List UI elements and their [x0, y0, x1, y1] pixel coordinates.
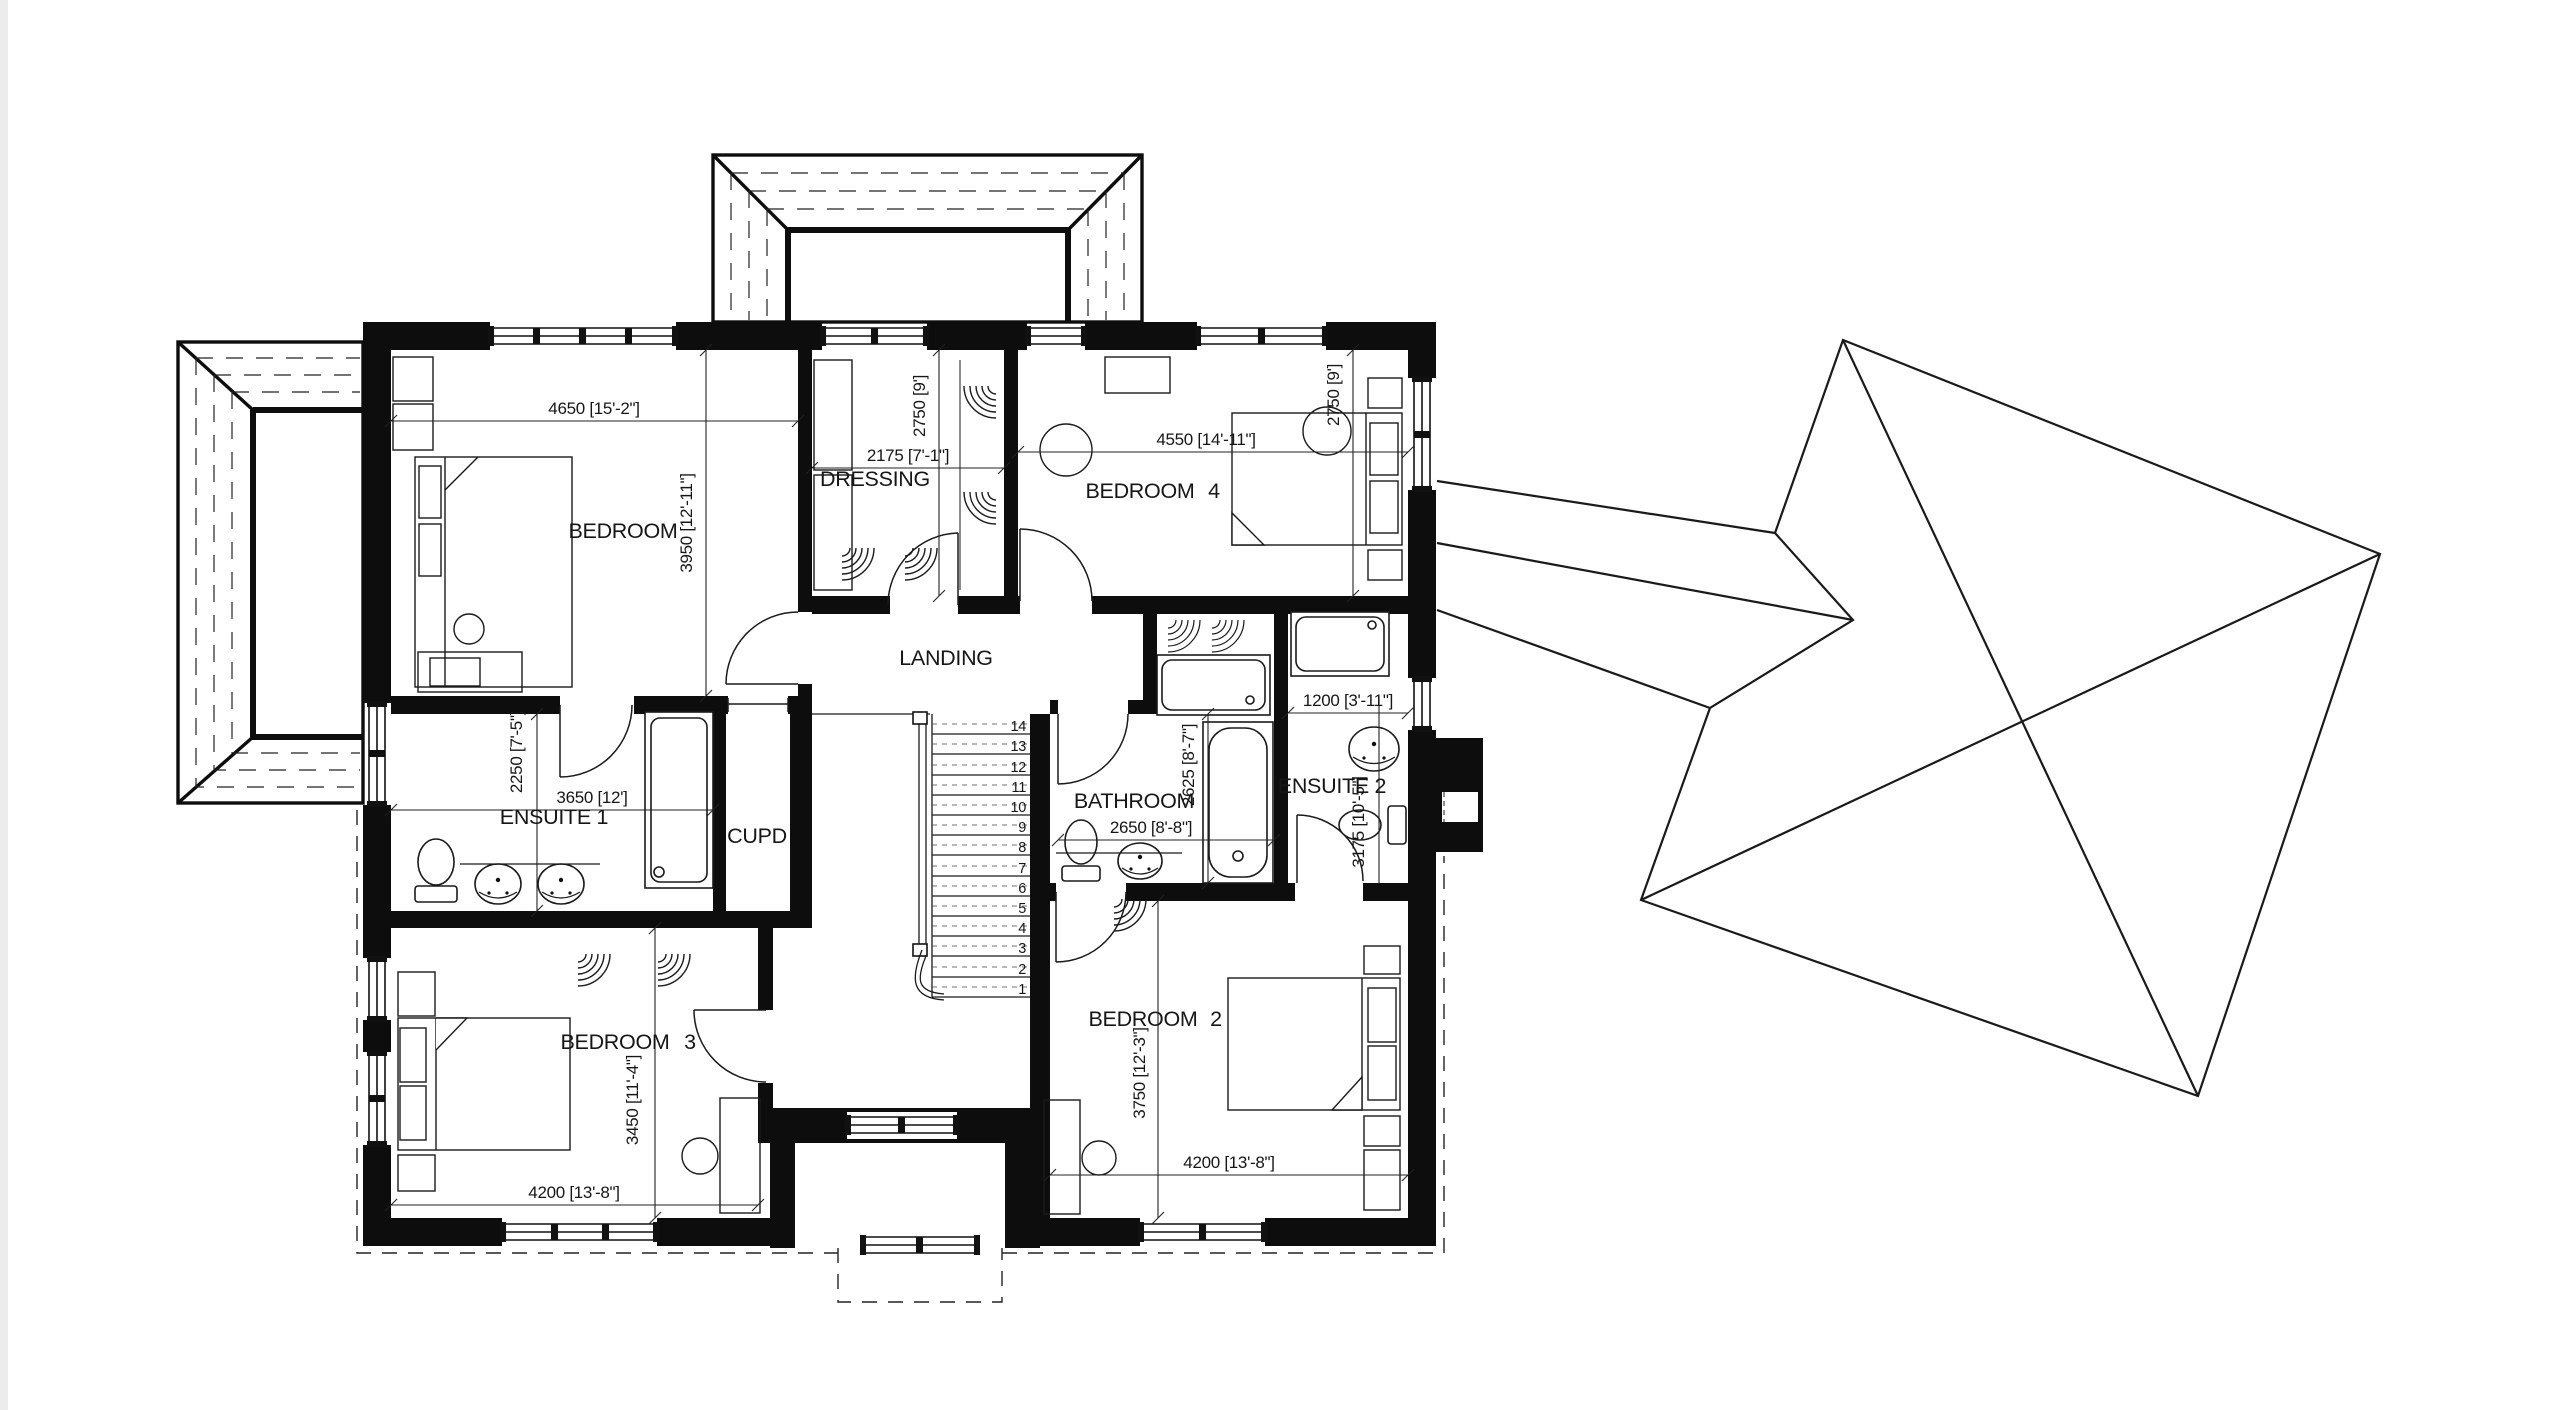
dim-ensuite2-width: 1200 [3'-11"] [1303, 691, 1393, 710]
roof-hip-line [1641, 554, 2380, 900]
room-label-dressing: DRESSING [820, 467, 930, 491]
roof-hip-line [1843, 340, 2198, 1096]
window-dressing-top [820, 322, 929, 350]
floor-plan-drawing: 14 13 12 11 10 9 8 7 6 5 4 3 2 1 [0, 0, 2558, 1410]
window-bedroom4-top-right [1195, 322, 1328, 350]
balcony-roof-left [178, 342, 363, 803]
room-number-bedroom-4: 4 [1208, 479, 1220, 503]
dim-bedroom2-height: 3750 [12'-3"] [1130, 1027, 1149, 1118]
window-ground-bay [838, 1235, 1002, 1302]
dim-bedroom4-height: 2750 [9'] [1324, 364, 1343, 426]
room-label-bedroom-3: BEDROOM [561, 1030, 670, 1054]
dim-ensuite1-height: 2250 [7'-5"] [507, 711, 526, 793]
svg-text:7: 7 [1018, 861, 1026, 877]
svg-text:11: 11 [1012, 780, 1027, 796]
room-label-ensuite-1: ENSUITE 1 [500, 805, 608, 829]
room-label-bedroom-1: BEDROOM [569, 519, 678, 543]
svg-text:13: 13 [1010, 739, 1026, 755]
svg-text:4: 4 [1018, 921, 1026, 937]
dim-ensuite1-width: 3650 [12'] [556, 788, 627, 807]
room-label-bedroom-4: BEDROOM [1086, 479, 1195, 503]
window-bedroom3-left-lower [363, 1050, 391, 1147]
door-cupd [728, 698, 788, 712]
window-bedroom4-right [1408, 376, 1436, 492]
dim-bedroom2-width: 4200 [13'-8"] [1183, 1153, 1274, 1172]
door-bedroom3 [694, 1010, 766, 1082]
svg-text:14: 14 [1010, 719, 1026, 735]
stair-balustrade [913, 712, 944, 1000]
dim-dressing-width: 2175 [7'-1"] [867, 446, 949, 465]
roof-link-lines [1437, 481, 1853, 708]
room-label-bathroom: BATHROOM [1074, 789, 1194, 813]
chimney-flue [1442, 792, 1478, 822]
dim-bedroom4-width: 4550 [14'-11"] [1156, 430, 1255, 449]
svg-text:5: 5 [1018, 901, 1026, 917]
bathroom-fixtures [1056, 620, 1273, 883]
svg-text:2: 2 [1018, 962, 1026, 978]
room-number-bedroom-2: 2 [1210, 1007, 1222, 1031]
dim-bedroom3-height: 3450 [11'-4"] [623, 1055, 642, 1145]
door-bedroom4 [1020, 529, 1092, 601]
svg-text:3: 3 [1018, 941, 1026, 957]
room-number-bedroom-3: 3 [684, 1030, 696, 1054]
dim-dressing-height: 2750 [9'] [910, 375, 929, 437]
staircase: 14 13 12 11 10 9 8 7 6 5 4 3 2 1 [812, 712, 1030, 1000]
dim-bedroom1-height: 3950 [12'-11"] [677, 473, 696, 572]
window-bedroom3-bottom [500, 1218, 659, 1246]
dim-bathroom-width: 2650 [8'-8"] [1110, 818, 1192, 837]
dim-ensuite2-height: 3175 [10'-5"] [1349, 776, 1368, 867]
svg-text:6: 6 [1018, 881, 1026, 897]
svg-text:8: 8 [1018, 840, 1026, 856]
furniture-bedroom1 [393, 357, 572, 692]
room-label-landing: LANDING [899, 646, 992, 670]
main-roof-plan [1437, 340, 2380, 1096]
furniture-bedroom4 [1040, 357, 1402, 580]
room-label-cupd: CUPD [727, 824, 787, 848]
svg-text:12: 12 [1010, 760, 1026, 776]
dim-bedroom1-width: 4650 [15'-2"] [548, 399, 639, 418]
door-bedroom2 [1056, 892, 1126, 962]
svg-text:1: 1 [1018, 982, 1026, 998]
door-dressing [888, 533, 958, 605]
dim-bedroom3-width: 4200 [13'-8"] [528, 1183, 619, 1202]
room-label-ensuite-2: ENSUITE 2 [1278, 774, 1386, 798]
svg-text:9: 9 [1018, 820, 1026, 836]
dim-bathroom-height: 2625 [8'-7"] [1179, 724, 1198, 806]
porch-roof-top [713, 155, 1142, 322]
window-ensuite2-right [1408, 676, 1436, 732]
window-ensuite1-left [363, 701, 391, 807]
door-bedroom1 [726, 612, 798, 684]
furniture-bedroom3 [398, 954, 760, 1213]
window-recess [845, 1112, 959, 1139]
window-bedroom1-top [488, 322, 678, 350]
window-bedroom2-bottom [1138, 1218, 1267, 1246]
window-bedroom3-left-upper [363, 956, 391, 1022]
floor-plan-page: 14 13 12 11 10 9 8 7 6 5 4 3 2 1 [0, 0, 2558, 1410]
window-bedroom4-top-left [1025, 322, 1087, 350]
svg-text:10: 10 [1010, 800, 1026, 816]
door-bathroom [1058, 714, 1128, 784]
door-ensuite1 [560, 705, 632, 777]
